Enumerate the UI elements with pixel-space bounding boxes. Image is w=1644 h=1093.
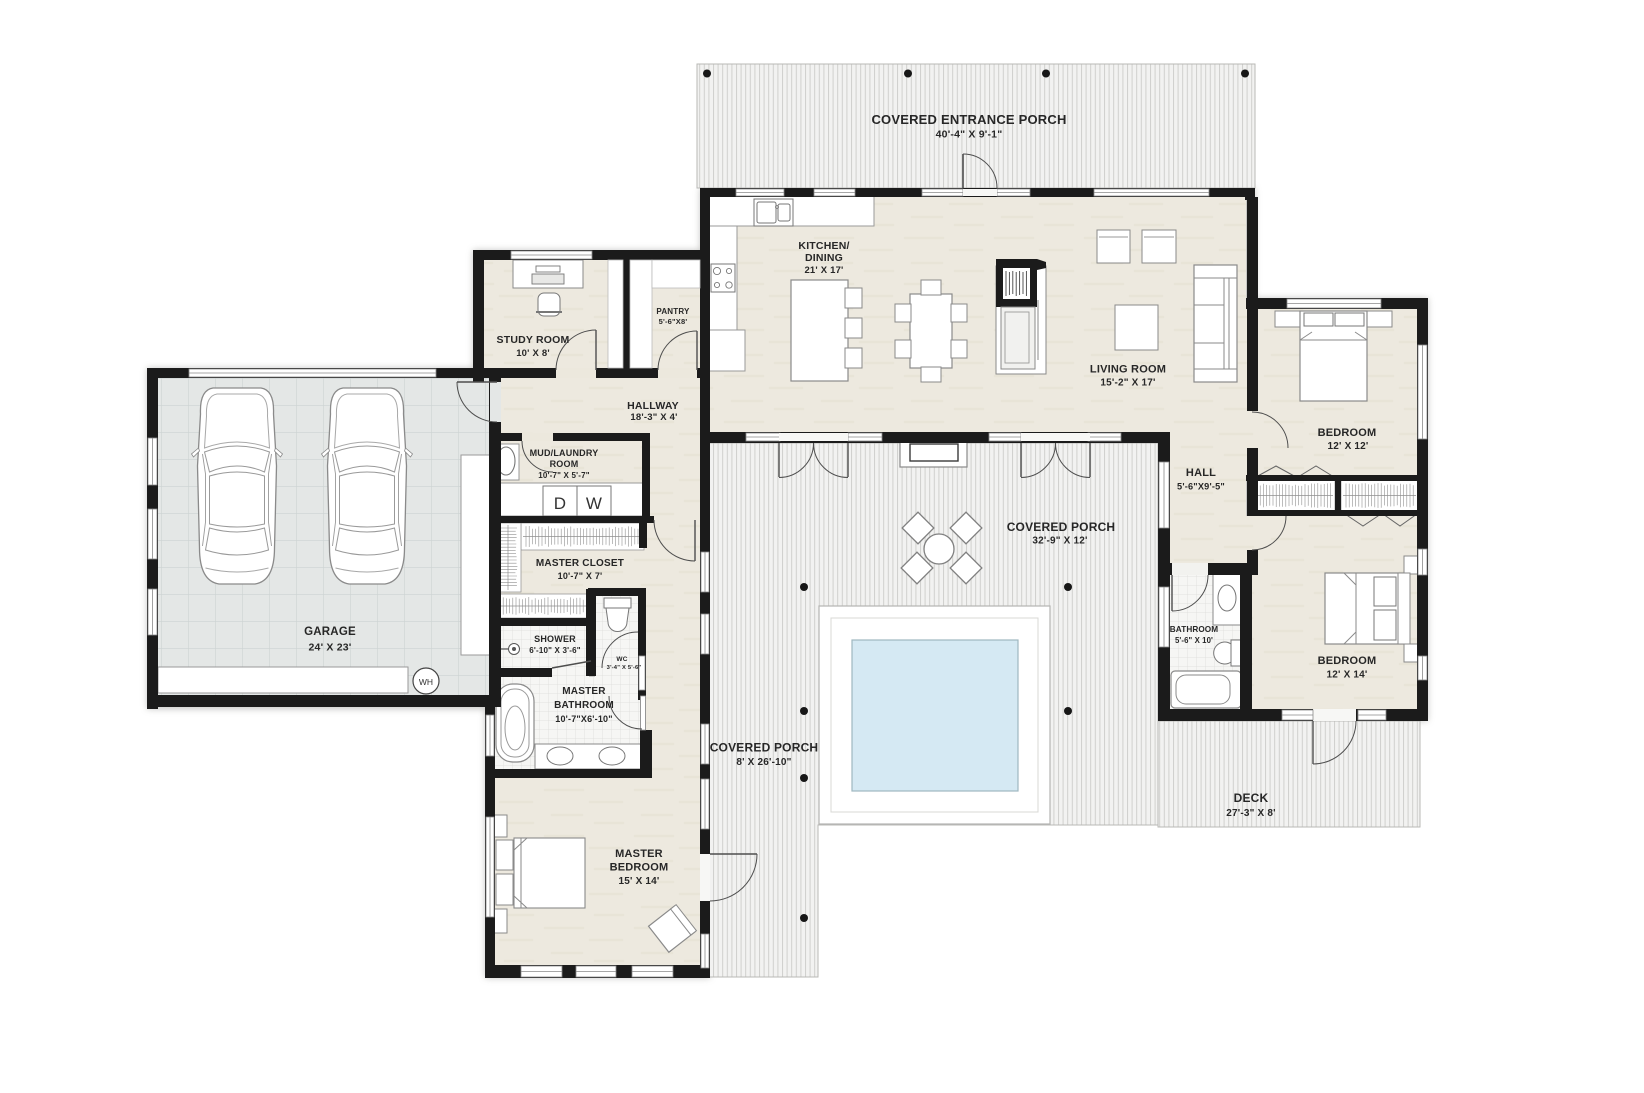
- svg-text:12' X 12': 12' X 12': [1327, 441, 1368, 452]
- svg-text:BEDROOM: BEDROOM: [1318, 655, 1377, 667]
- svg-text:5'-6"X8': 5'-6"X8': [659, 317, 688, 326]
- svg-text:STUDY ROOM: STUDY ROOM: [497, 334, 570, 346]
- svg-text:MASTER: MASTER: [615, 848, 663, 860]
- svg-text:24' X 23': 24' X 23': [309, 642, 352, 654]
- svg-text:10'-7" X 7': 10'-7" X 7': [558, 571, 603, 581]
- svg-text:6'-10" X 3'-6": 6'-10" X 3'-6": [529, 646, 581, 655]
- svg-text:COVERED ENTRANCE PORCH: COVERED ENTRANCE PORCH: [871, 112, 1066, 127]
- svg-text:HALLWAY: HALLWAY: [627, 400, 679, 412]
- svg-text:SHOWER: SHOWER: [534, 634, 576, 644]
- svg-text:18'-3" X 4': 18'-3" X 4': [630, 412, 677, 423]
- svg-text:15'-2" X 17': 15'-2" X 17': [1100, 378, 1155, 389]
- svg-text:COVERED PORCH: COVERED PORCH: [1007, 520, 1116, 534]
- svg-text:WC: WC: [616, 656, 627, 663]
- svg-text:27'-3" X 8': 27'-3" X 8': [1226, 808, 1276, 819]
- svg-text:3'-4" X 5'-6": 3'-4" X 5'-6": [607, 665, 642, 671]
- svg-text:DECK: DECK: [1234, 791, 1269, 805]
- svg-text:W: W: [586, 494, 602, 513]
- svg-text:10'-7" X 5'-7": 10'-7" X 5'-7": [538, 471, 590, 480]
- svg-text:32'-9" X 12': 32'-9" X 12': [1032, 536, 1087, 547]
- svg-text:COVERED PORCH: COVERED PORCH: [710, 741, 819, 755]
- svg-text:D: D: [554, 494, 566, 513]
- svg-text:10' X 8': 10' X 8': [516, 348, 550, 359]
- svg-text:15' X 14': 15' X 14': [618, 876, 659, 887]
- svg-text:5'-6"X9'-5": 5'-6"X9'-5": [1177, 482, 1225, 492]
- svg-text:MUD/LAUNDRY: MUD/LAUNDRY: [530, 448, 599, 458]
- svg-text:10'-7"X6'-10": 10'-7"X6'-10": [555, 714, 612, 724]
- svg-text:MASTER CLOSET: MASTER CLOSET: [536, 558, 624, 569]
- svg-text:HALL: HALL: [1186, 467, 1216, 479]
- svg-text:BATHROOM: BATHROOM: [1170, 625, 1218, 634]
- svg-text:BEDROOM: BEDROOM: [610, 862, 669, 874]
- svg-text:40'-4" X 9'-1": 40'-4" X 9'-1": [936, 129, 1003, 141]
- svg-text:12' X 14': 12' X 14': [1326, 670, 1367, 681]
- svg-text:21' X 17': 21' X 17': [804, 265, 843, 276]
- svg-text:GARAGE: GARAGE: [304, 626, 356, 638]
- svg-text:DINING: DINING: [805, 252, 843, 264]
- svg-text:KITCHEN/: KITCHEN/: [798, 240, 849, 252]
- svg-text:ROOM: ROOM: [550, 459, 579, 469]
- svg-text:5'-6" X 10': 5'-6" X 10': [1175, 636, 1213, 645]
- svg-text:PANTRY: PANTRY: [656, 307, 690, 316]
- svg-text:BATHROOM: BATHROOM: [554, 700, 614, 711]
- svg-text:8' X 26'-10": 8' X 26'-10": [736, 757, 791, 768]
- svg-text:WH: WH: [419, 677, 433, 687]
- svg-text:BEDROOM: BEDROOM: [1318, 427, 1377, 439]
- svg-text:LIVING ROOM: LIVING ROOM: [1090, 364, 1166, 376]
- svg-text:MASTER: MASTER: [562, 686, 606, 697]
